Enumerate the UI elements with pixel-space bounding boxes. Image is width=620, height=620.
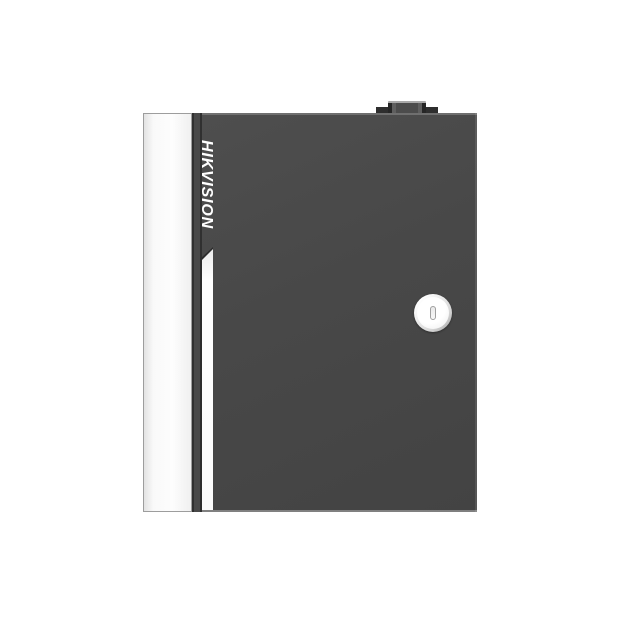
product-photo-scene: HIKVISION (0, 0, 620, 620)
keyhole-slot-icon (430, 306, 436, 320)
enclosure-door: HIKVISION (192, 113, 477, 512)
enclosure-body: HIKVISION (143, 113, 477, 512)
lock-face (417, 297, 449, 329)
brand-logo: HIKVISION (199, 140, 213, 230)
enclosure-side-panel (143, 113, 192, 512)
access-control-enclosure: HIKVISION (143, 101, 477, 512)
door-groove-stripe (202, 249, 213, 510)
key-lock (414, 294, 452, 332)
